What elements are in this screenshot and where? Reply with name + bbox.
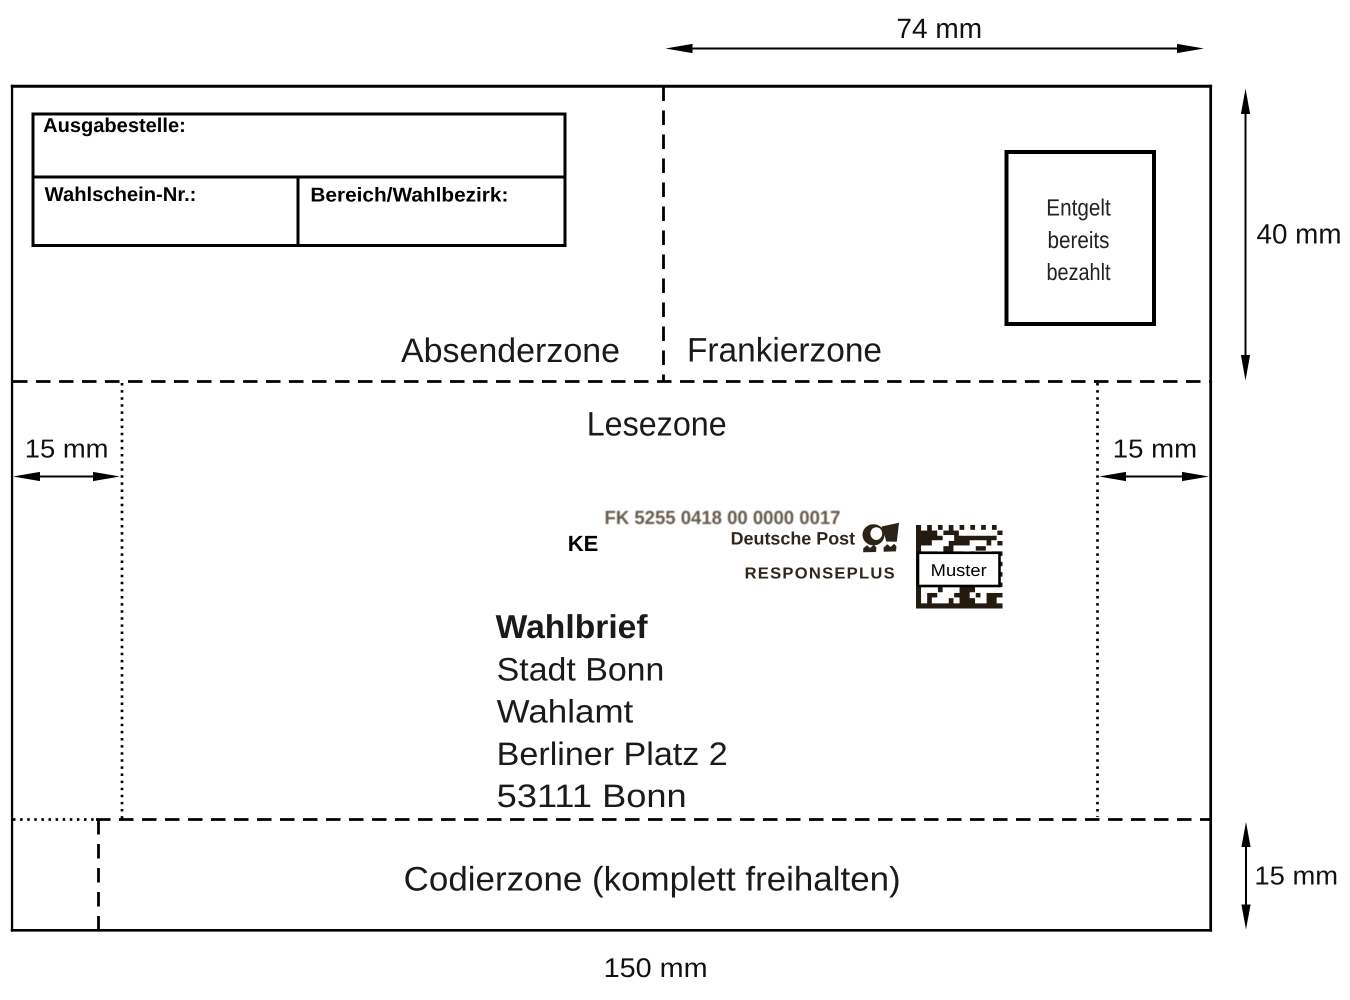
svg-text:15 mm: 15 mm — [25, 434, 109, 464]
svg-text:15 mm: 15 mm — [1254, 861, 1338, 891]
svg-text:Bereich/Wahlbezirk:: Bereich/Wahlbezirk: — [310, 185, 508, 207]
svg-text:Muster: Muster — [931, 561, 987, 580]
svg-text:Lesezone: Lesezone — [587, 406, 727, 444]
svg-text:15 mm: 15 mm — [1113, 434, 1197, 464]
svg-text:Stadt Bonn: Stadt Bonn — [497, 651, 665, 687]
svg-text:Ausgabestelle:: Ausgabestelle: — [43, 115, 186, 137]
svg-text:FK 5255 0418 00 0000 0017: FK 5255 0418 00 0000 0017 — [605, 508, 841, 529]
svg-text:53111 Bonn: 53111 Bonn — [497, 778, 687, 814]
svg-text:Wahlamt: Wahlamt — [497, 694, 634, 730]
svg-text:KE: KE — [568, 531, 599, 556]
svg-text:Berliner Platz 2: Berliner Platz 2 — [497, 736, 728, 772]
svg-text:40 mm: 40 mm — [1257, 219, 1342, 250]
svg-text:Entgelt: Entgelt — [1046, 195, 1111, 221]
svg-text:RESPONSEPLUS: RESPONSEPLUS — [745, 566, 896, 583]
svg-text:Deutsche Post: Deutsche Post — [731, 529, 856, 549]
svg-text:Wahlschein-Nr.:: Wahlschein-Nr.: — [45, 184, 197, 206]
svg-text:74 mm: 74 mm — [896, 13, 982, 44]
svg-text:Codierzone (komplett freihalte: Codierzone (komplett freihalten) — [404, 861, 901, 899]
svg-text:bereits: bereits — [1048, 227, 1110, 253]
svg-text:bezahlt: bezahlt — [1047, 259, 1111, 285]
svg-text:Absenderzone: Absenderzone — [401, 332, 620, 370]
svg-text:Frankierzone: Frankierzone — [687, 332, 882, 370]
svg-text:Wahlbrief: Wahlbrief — [496, 608, 649, 645]
svg-text:150 mm: 150 mm — [604, 953, 708, 983]
